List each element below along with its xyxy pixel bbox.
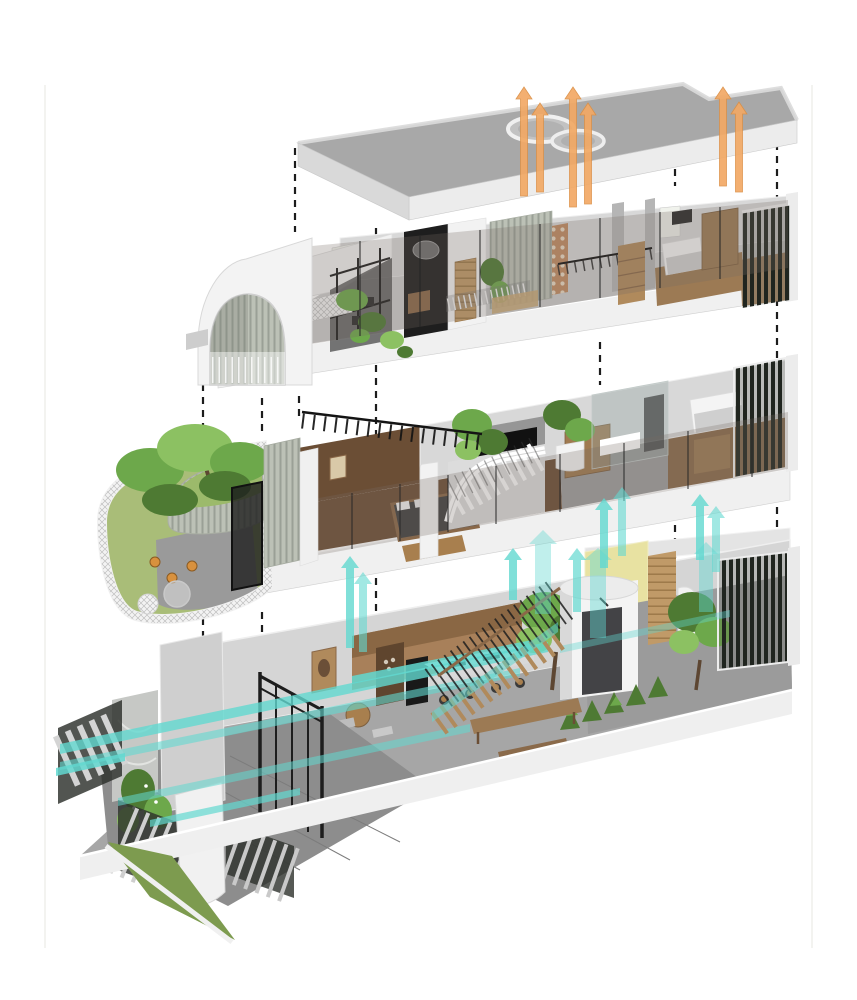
wall-art-frame <box>330 455 346 480</box>
white-corner-wall <box>300 448 318 566</box>
exploded-axonometric-figure <box>0 0 857 1000</box>
house-diagram-canvas <box>0 0 857 1000</box>
second-floor-level <box>186 192 798 388</box>
mesh-pouf <box>138 594 158 614</box>
concrete-slat-wall <box>264 438 300 568</box>
barrel-vault-volume <box>186 238 312 385</box>
balcony-door <box>232 482 262 590</box>
artwork-figure <box>318 659 330 677</box>
glass-table <box>164 581 190 607</box>
rear-end-wall <box>788 546 800 666</box>
roof-slab-level <box>298 84 797 220</box>
arch-balustrade <box>210 352 285 385</box>
